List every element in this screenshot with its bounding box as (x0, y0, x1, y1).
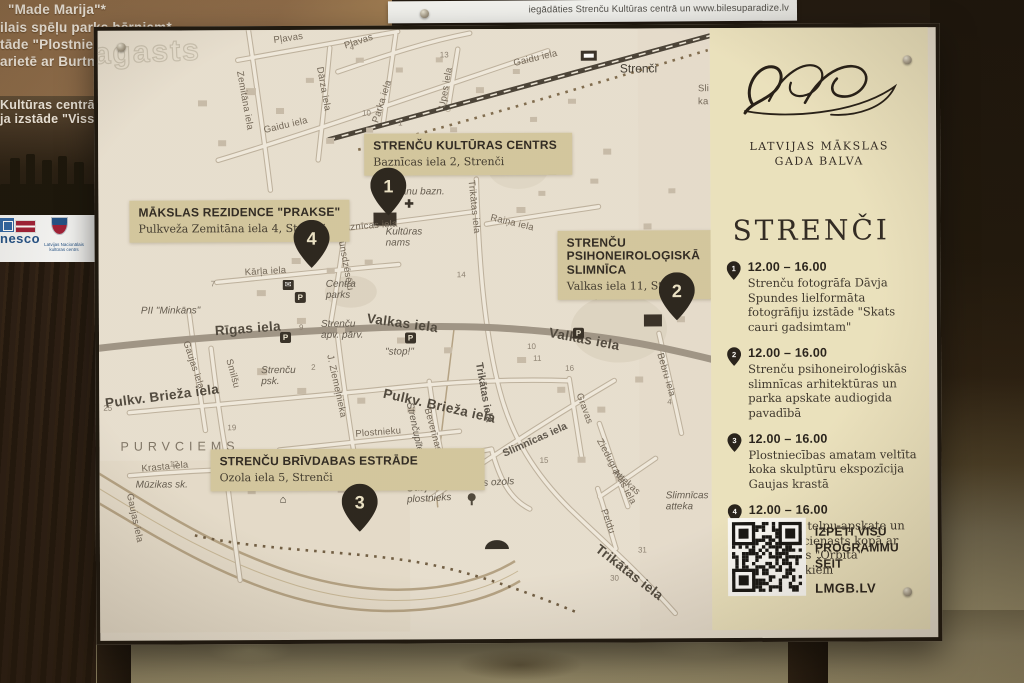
map-street-label: Centra parks (326, 280, 356, 302)
tree-trunk (0, 262, 96, 683)
map-street-label: Gaujas iela (124, 493, 145, 544)
pin-icon: 1 (727, 261, 741, 280)
map-street-label: Pļavas (343, 33, 374, 52)
map-street-label: Rīgas iela (214, 319, 281, 338)
map-street-label: Valkas iela (548, 326, 621, 354)
city-title: STRENČI (732, 213, 890, 247)
svg-text:1: 1 (383, 176, 393, 196)
back-sign-line: Kultūras centrā a (0, 98, 106, 112)
map-labels-layer: agastsZemitāna ielaPļavasPļavasParka iel… (98, 28, 713, 633)
map-street-label: Raiņa iela (489, 213, 534, 233)
map-house-number: 13 (440, 51, 449, 60)
map-street-label: ka (698, 97, 708, 107)
information-board: agastsZemitāna ielaPļavasPļavasParka iel… (94, 23, 943, 645)
map-house-number: 30 (610, 575, 619, 584)
map-street-label: Strenču psk. (261, 366, 296, 388)
parking-icon: P (405, 332, 416, 343)
map-house-number: 10 (362, 110, 371, 119)
map-house-number: 7 (211, 280, 215, 289)
qr-code (728, 518, 806, 596)
schedule-item-2: 2 12.00 – 16.00 Strenču psihoneiroloģisk… (727, 345, 919, 421)
map-street-label: Zemitāna iela (234, 70, 255, 131)
map-house-number: 15 (540, 457, 549, 466)
logo-line1: LATVIJAS MĀKSLAS (710, 139, 928, 155)
map-house-number: 11 (533, 355, 541, 364)
map-street-label: Plostnieku (355, 426, 401, 440)
map-street-label: Kārļa iela (244, 266, 286, 279)
qr-caption-line2: PROGRAMMU ŠEIT (815, 539, 930, 572)
map-house-number: 9 (299, 324, 303, 333)
photo-of-information-board: "Made Marija"* ilais spēļu parks bērniem… (0, 0, 1024, 683)
map-street-label: Kultūras nams (386, 227, 423, 249)
map-street-label: PII "Minkāns" (141, 306, 200, 317)
map-street-label: Dārza iela (314, 66, 332, 112)
post-office-icon: ✉ (283, 280, 294, 290)
map-street-label: Slimnīcas iela (501, 421, 569, 460)
map-street-label: Pļavas (273, 32, 304, 46)
svg-text:4: 4 (307, 229, 317, 249)
map-house-number: 4 (350, 44, 354, 53)
event-time: 12.00 – 16.00 (748, 259, 918, 274)
event-time: 12.00 – 16.00 (748, 345, 918, 360)
house-icon: ⌂ (280, 495, 287, 507)
map-street-label: Krasta iela (141, 460, 189, 475)
svg-text:2: 2 (732, 350, 736, 359)
screw-icon (903, 587, 912, 596)
callout-title: STRENČU KULTŪRAS CENTRS (373, 139, 563, 153)
svg-text:3: 3 (355, 492, 365, 512)
map-house-number: 31 (638, 546, 647, 555)
program-panel: LATVIJAS MĀKSLAS GADA BALVA STRENČI 1 12… (710, 27, 931, 630)
map-street-label: Slimnīcas atteka (666, 491, 709, 513)
map-street-label: Upes iela (438, 67, 455, 110)
map-watermark: agasts (98, 35, 202, 72)
map-street-label: J. Ziemeļnieka (324, 354, 348, 419)
unesco-label: nesco (0, 231, 40, 246)
event-time: 12.00 – 16.00 (748, 431, 918, 446)
qr-caption-line1: IZPĒTI VISU (815, 523, 930, 540)
svg-text:1: 1 (732, 264, 736, 273)
map-street-label: Trikātas iela (592, 542, 665, 603)
map-house-number: 4 (667, 398, 671, 407)
map-house-number: 1 (398, 120, 402, 129)
map-street-label: Gaidu iela (513, 49, 559, 69)
unesco-icon (0, 218, 14, 232)
ticket-info-strip: iegādāties Strenču Kultūras centrā un ww… (388, 0, 797, 23)
map-street-label: Pulkv. Brieža iela (104, 382, 220, 411)
parking-icon: P (280, 332, 291, 343)
background-right (930, 0, 1024, 683)
strenci-map: agastsZemitāna ielaPļavasPļavasParka iel… (98, 28, 713, 633)
map-house-number: 25 (103, 405, 112, 414)
latvia-flag-icon (16, 221, 35, 232)
website-label: LMGB.LV (815, 580, 876, 595)
logo-line2: GADA BALVA (710, 154, 928, 170)
map-street-label: Peldu (598, 508, 616, 535)
map-street-label: Valkas iela (366, 312, 439, 336)
back-sign-line: "Made Marija"* (8, 2, 106, 17)
map-pin-4: 4 (294, 220, 330, 268)
map-street-label: "stop!" (385, 347, 414, 358)
map-house-number: 12 (170, 460, 179, 469)
schedule-item-3: 3 12.00 – 16.00 Plostniecības amatam vel… (727, 431, 919, 492)
culture-centre-label: Latvijas Nacionālais kultūras centrs (40, 242, 88, 253)
map-house-number: 19 (227, 424, 236, 433)
event-description: Plostniecības amatam veltīta koka skulpt… (748, 447, 918, 492)
map-pin-1: 1 (370, 167, 406, 215)
event-time: 12.00 – 16.00 (749, 502, 919, 517)
map-house-number: 10 (527, 343, 536, 352)
pin-icon: 3 (727, 433, 741, 452)
map-street-label: Strenči (620, 62, 657, 75)
screw-icon (117, 43, 126, 52)
map-street-label: Sli (698, 84, 709, 94)
map-street-label: Gravas (573, 392, 594, 425)
map-house-number: 14 (457, 271, 466, 280)
culture-centre-crest-icon (52, 218, 67, 234)
event-description: Strenču psihoneiroloģiskās slimnīcas arh… (748, 361, 918, 421)
map-house-number: 2 (311, 364, 315, 373)
parking-icon: P (573, 328, 584, 339)
map-street-label: Trikātas iela (465, 180, 481, 234)
parking-icon: P (295, 292, 306, 303)
screw-icon (903, 55, 912, 64)
event-description: Strenču fotogrāfa Dāvja Spundes lielform… (748, 275, 918, 335)
back-sign-line: arietē ar Burtnie (0, 54, 107, 69)
map-pin-2: 2 (659, 272, 695, 320)
callout-title: MĀKSLAS REZIDENCE "PRAKSE" (138, 206, 340, 220)
map-street-label: Smilšu (223, 358, 241, 389)
callout-title: STRENČU BRĪVDABAS ESTRĀDE (220, 454, 476, 469)
svg-text:3: 3 (732, 436, 736, 445)
map-pin-3: 3 (342, 484, 378, 532)
pin-icon: 2 (727, 347, 741, 366)
back-sign-line: ja izstāde "Viss, k (0, 112, 109, 126)
map-street-label: Mūzikas sk. (136, 480, 188, 491)
map-street-label: Gaidu iela (263, 116, 309, 136)
ticket-info-text: iegādāties Strenču Kultūras centrā un ww… (529, 3, 790, 16)
lmgb-logo-text: LATVIJAS MĀKSLAS GADA BALVA (710, 139, 928, 170)
svg-text:2: 2 (672, 281, 682, 301)
map-street-label: Parka iela (371, 79, 394, 124)
schedule-item-1: 1 12.00 – 16.00 Strenču fotogrāfa Dāvja … (727, 259, 919, 335)
callout-title: STRENČU PSIHONEIROLOĢISKĀ SLIMNĪCA (567, 236, 709, 277)
screw-icon (420, 9, 429, 18)
lmgb-logo-flourish (735, 52, 905, 133)
map-house-number: 16 (565, 365, 574, 374)
map-street-label: Bebru iela (654, 352, 676, 398)
qr-caption: IZPĒTI VISU PROGRAMMU ŠEIT (815, 523, 930, 572)
map-street-label: Strenču apv. pārv. (321, 320, 364, 342)
callout-address: Ozola iela 5, Strenči (220, 471, 476, 485)
